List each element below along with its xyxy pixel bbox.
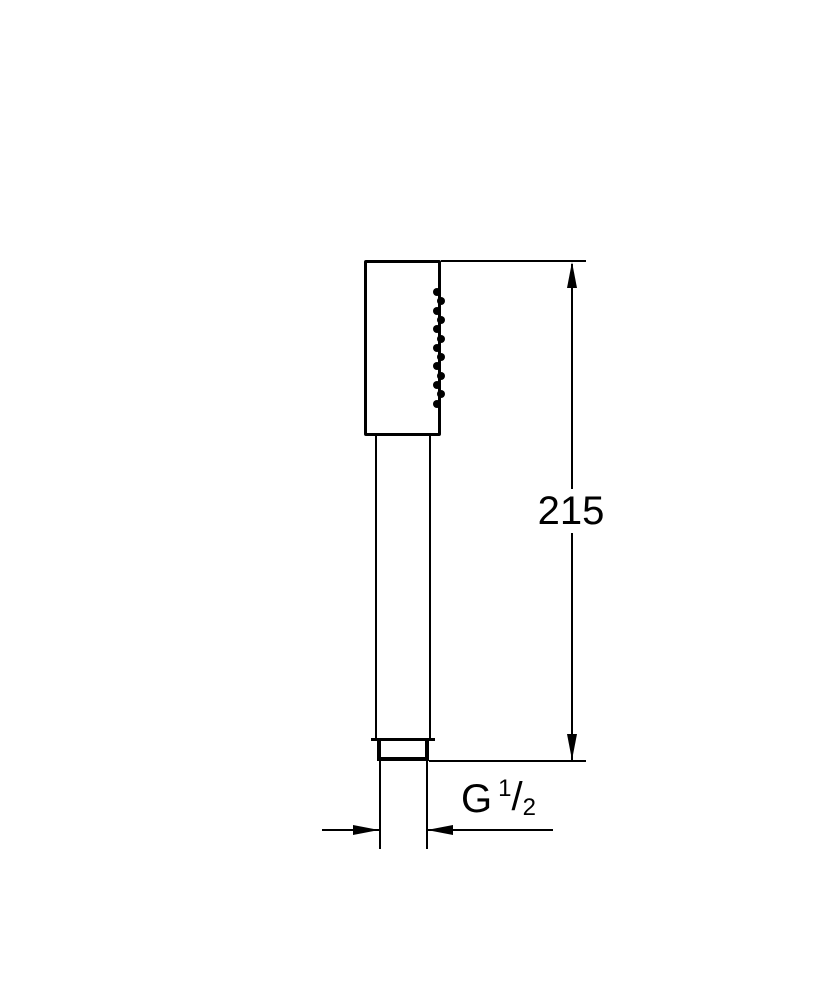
spray-dot	[437, 316, 445, 324]
connector-nut-outline	[377, 741, 429, 761]
spray-dot	[433, 362, 441, 370]
arrowhead-left-icon	[427, 825, 453, 835]
arrowhead-down-icon	[567, 734, 577, 760]
spray-dot	[437, 372, 445, 380]
spray-dot	[433, 307, 441, 315]
thread-prefix: G	[461, 777, 492, 821]
spray-dot	[437, 297, 445, 305]
inlet-pipe-outline	[379, 761, 428, 849]
spray-dot	[437, 335, 445, 343]
spray-dot	[437, 353, 445, 361]
extension-line-bottom	[429, 760, 586, 762]
spray-nozzle-dots	[433, 288, 445, 410]
spray-dot	[433, 400, 441, 408]
spray-dot	[437, 390, 445, 398]
spray-dot	[433, 325, 441, 333]
spray-dot	[433, 344, 441, 352]
thread-numerator: 1	[498, 775, 511, 802]
shower-head-outline	[364, 260, 441, 436]
drawing-canvas: 215 G1/2	[0, 0, 833, 1000]
spray-dot	[433, 381, 441, 389]
thread-size-label: G1/2	[461, 779, 536, 819]
spray-dot	[433, 288, 441, 296]
shower-handle-outline	[375, 436, 431, 738]
thread-slash: /	[511, 775, 522, 819]
arrowhead-right-icon	[353, 825, 379, 835]
height-dimension-label: 215	[531, 489, 611, 533]
arrowhead-up-icon	[567, 262, 577, 288]
thread-denominator: 2	[523, 794, 536, 821]
extension-line-top	[441, 260, 586, 262]
